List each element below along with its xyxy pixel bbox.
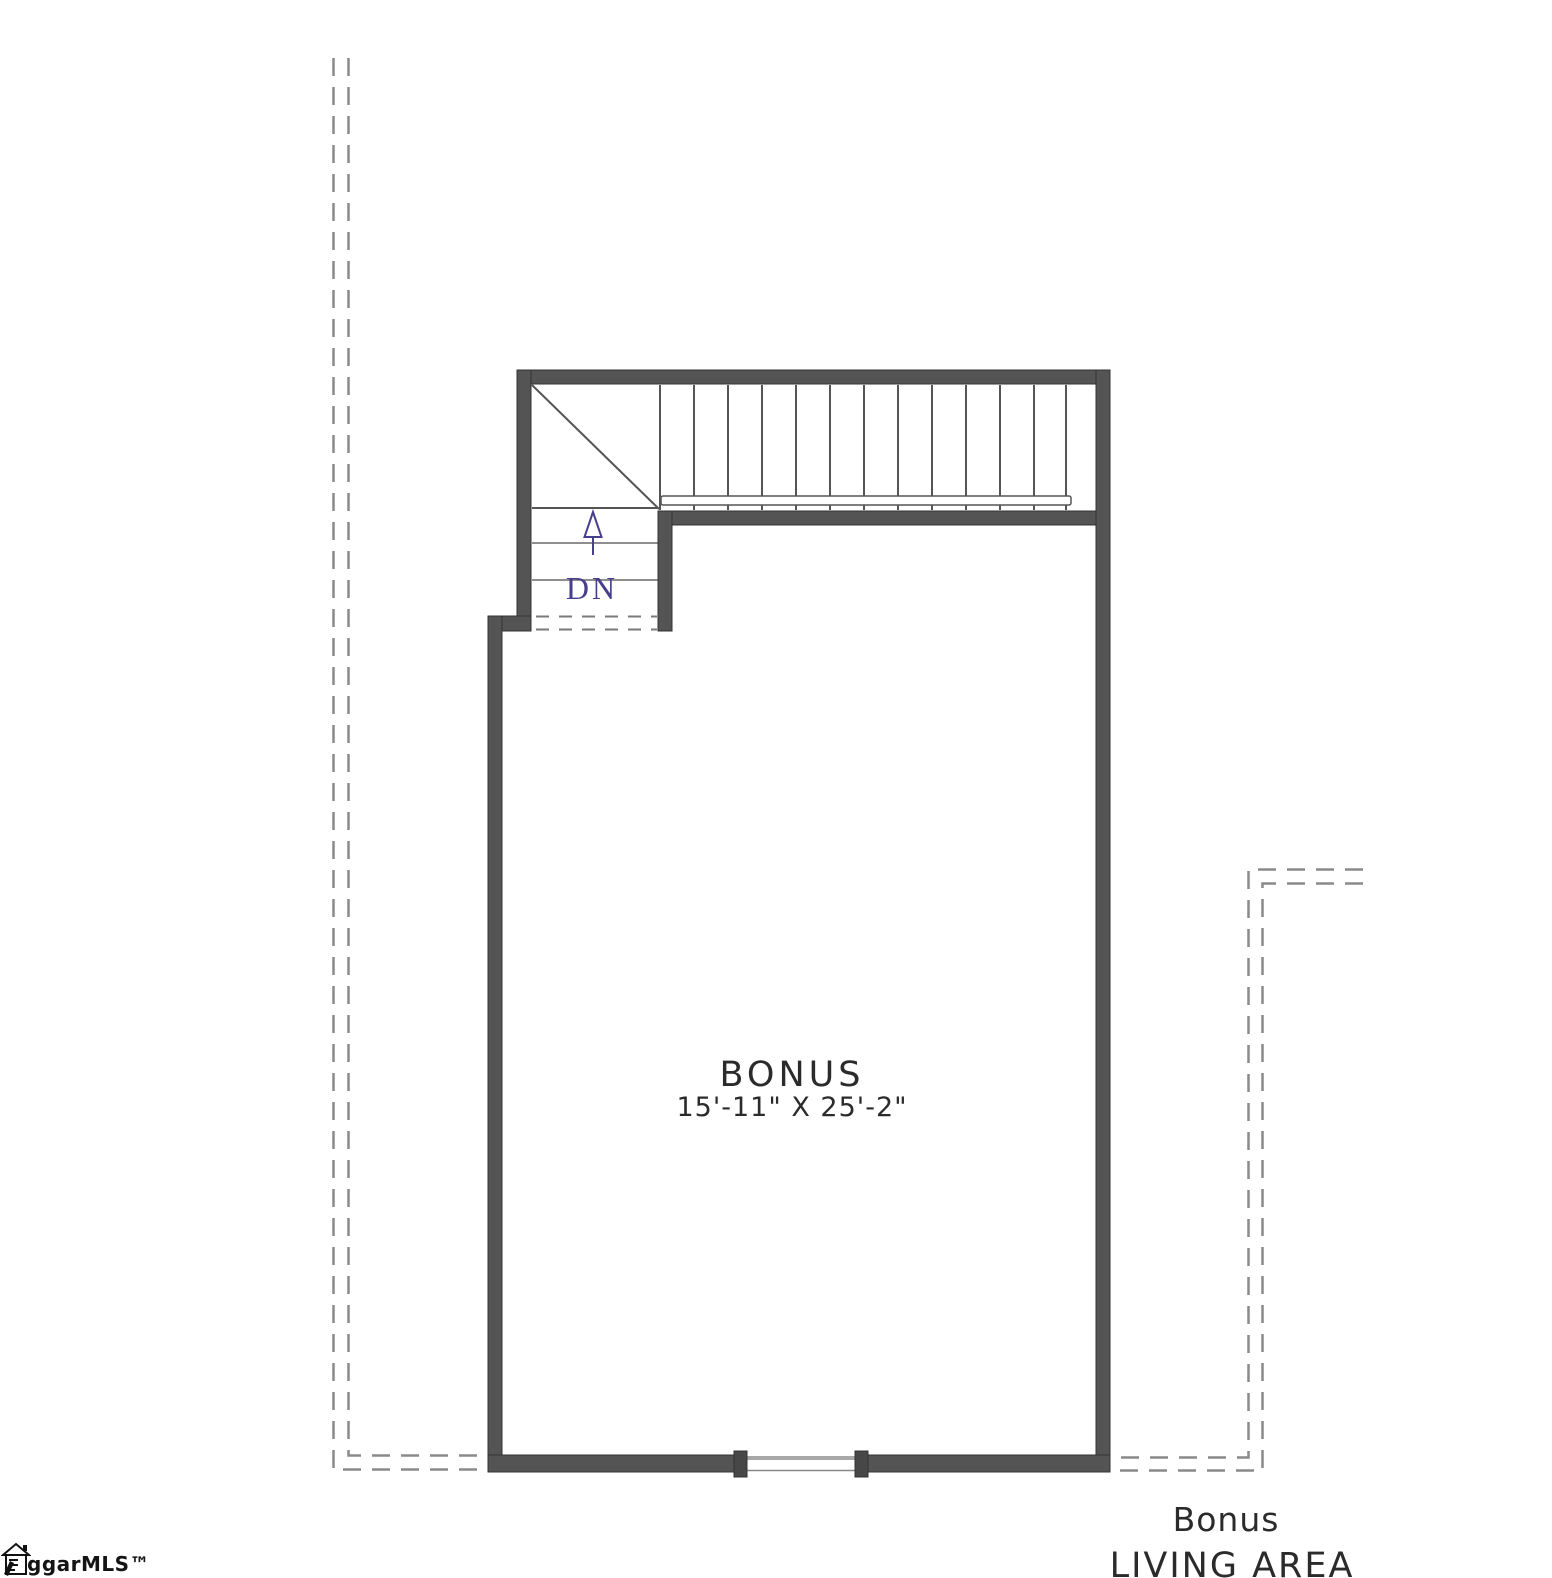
right-wall bbox=[1096, 370, 1110, 1472]
stair-inner-wall bbox=[658, 511, 672, 631]
stair-cut-dashed-lines bbox=[536, 617, 657, 630]
room-dimensions-label: 15'-11" X 25'-2" bbox=[676, 1092, 907, 1123]
watermark-label: ggarMLS™ bbox=[27, 1552, 150, 1577]
stair-handrail bbox=[661, 496, 1071, 505]
bottom-wall-right bbox=[855, 1455, 1110, 1472]
right-dashed-projection-lines bbox=[1110, 870, 1363, 1471]
mls-watermark: ggarMLS™ bbox=[1, 1541, 150, 1577]
area-label-line2: LIVING AREA bbox=[1110, 1546, 1355, 1578]
dashed-line bbox=[1110, 870, 1363, 1458]
walls bbox=[488, 370, 1110, 1472]
area-label-line1: Bonus bbox=[1173, 1500, 1280, 1539]
dashed-line bbox=[349, 58, 489, 1456]
dashed-line bbox=[1110, 884, 1363, 1471]
bottom-wall-left bbox=[488, 1455, 747, 1472]
floor-plan-drawing bbox=[0, 0, 1552, 1578]
stair-direction-label: DN bbox=[566, 570, 618, 607]
left-dashed-projection-lines bbox=[334, 58, 489, 1470]
stair-break-diagonal-line bbox=[532, 385, 659, 509]
opening-jamb bbox=[734, 1451, 747, 1477]
left-wall-lower bbox=[488, 616, 502, 1472]
top-wall bbox=[517, 370, 1110, 384]
stair-treads bbox=[660, 385, 1066, 510]
stair-bottom-wall bbox=[658, 511, 1096, 525]
floor-plan-page: DN BONUS 15'-11" X 25'-2" Bonus LIVING A… bbox=[0, 0, 1552, 1578]
stair-up-arrow bbox=[585, 512, 602, 555]
opening-jamb bbox=[855, 1451, 868, 1477]
dashed-line bbox=[334, 58, 489, 1470]
room-name-label: BONUS bbox=[720, 1055, 865, 1095]
left-wall-upper bbox=[517, 370, 531, 631]
bottom-wall-opening bbox=[734, 1451, 868, 1477]
